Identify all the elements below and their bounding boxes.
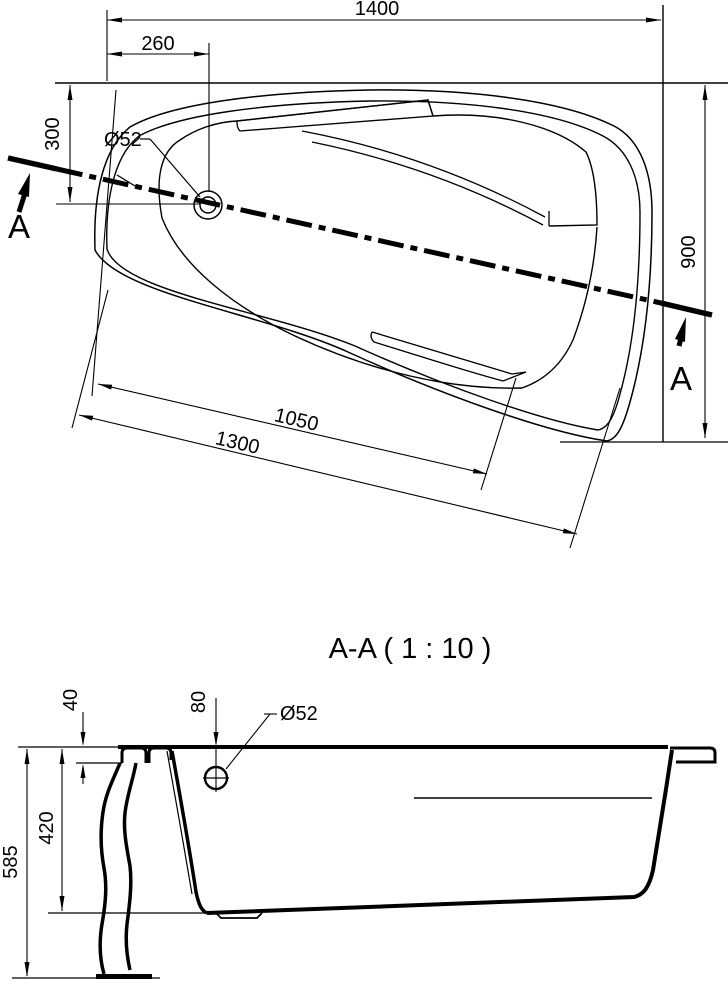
dim-1400-arrow-right bbox=[646, 18, 661, 23]
section-right-wall-and-bottom bbox=[207, 750, 672, 913]
basin-edge-top bbox=[159, 100, 597, 226]
bathtub-drawing-svg: 1400 260 300 900 1050 1300 Ø52 A A bbox=[0, 0, 728, 984]
dim-40-arrow-up bbox=[81, 764, 86, 778]
ext-1050-right bbox=[481, 378, 516, 490]
dim-1050-arrow-right bbox=[473, 468, 487, 474]
section-view bbox=[12, 698, 715, 979]
dim-1400-arrow-left bbox=[107, 18, 122, 23]
section-leg-outer bbox=[100, 763, 120, 974]
section-title: A-A ( 1 : 10 ) bbox=[329, 633, 492, 665]
section-marker-label-end: A bbox=[670, 360, 692, 397]
dim-1300-line bbox=[79, 415, 577, 534]
dim-40-arrow-down bbox=[81, 732, 86, 746]
dim-1300-label: 1300 bbox=[213, 427, 261, 459]
section-leg-inner bbox=[124, 763, 136, 970]
tub-inner-rim bbox=[107, 101, 640, 430]
section-left-wall-outer bbox=[172, 751, 207, 913]
seat-left-cap bbox=[371, 332, 374, 342]
dim-40-label: 40 bbox=[60, 689, 82, 711]
drain-leader-line bbox=[150, 139, 200, 197]
dim-300-label: 300 bbox=[42, 117, 64, 150]
section-line-end-left bbox=[8, 158, 57, 169]
plan-view bbox=[8, 5, 728, 548]
dim-585-arrow-bottom bbox=[25, 962, 30, 977]
dim-900-arrow-top bbox=[703, 85, 708, 100]
dim-1050-label: 1050 bbox=[272, 404, 320, 436]
dim-420-label: 420 bbox=[36, 811, 58, 844]
section-left-wall-inner bbox=[167, 751, 192, 894]
backrest-slope-line-1 bbox=[302, 131, 545, 217]
drain-diameter-label-section: Ø52 bbox=[280, 703, 318, 725]
ext-1300-left bbox=[72, 290, 108, 428]
basin-edge-right-lower bbox=[522, 227, 597, 388]
dim-1050-arrow-left bbox=[98, 384, 112, 390]
section-marker-label-start: A bbox=[8, 208, 30, 245]
dim-420-arrow-top bbox=[60, 749, 65, 764]
section-arrow-left-head bbox=[18, 173, 30, 197]
dim-1400-label: 1400 bbox=[355, 0, 400, 20]
dim-1300-arrow-left bbox=[79, 415, 93, 421]
section-line-dashes bbox=[57, 169, 661, 303]
section-line-end-right bbox=[661, 303, 712, 315]
section-flange-right bbox=[670, 748, 715, 762]
dim-300-arrow-bottom bbox=[68, 187, 73, 202]
backrest-slope-line-2 bbox=[312, 142, 543, 225]
ext-1300-right bbox=[570, 388, 620, 548]
dim-260-arrow-right bbox=[194, 52, 209, 57]
section-arrow-right-head bbox=[675, 317, 686, 342]
dim-585-label: 585 bbox=[0, 845, 22, 878]
basin-edge-bottom bbox=[162, 218, 522, 388]
seat-edge-lower bbox=[374, 342, 503, 381]
headrest-ledge bbox=[237, 100, 433, 131]
seat-point-chevron bbox=[503, 372, 526, 381]
tub-outer-rim bbox=[95, 90, 652, 441]
dim-80-arrow bbox=[214, 732, 219, 746]
section-rim-tab-1 bbox=[122, 748, 146, 763]
dim-900-arrow-bottom bbox=[703, 423, 708, 438]
dim-420-arrow-bottom bbox=[60, 896, 65, 911]
dim-900-label: 900 bbox=[678, 235, 700, 268]
dim-585-arrow-top bbox=[25, 749, 30, 764]
dim-260-label: 260 bbox=[141, 33, 174, 55]
dim-80-label: 80 bbox=[188, 691, 210, 713]
dim-260-arrow-left bbox=[107, 52, 122, 57]
dim-300-arrow-top bbox=[68, 85, 73, 100]
technical-drawing-page: 1400 260 300 900 1050 1300 Ø52 A A bbox=[0, 0, 728, 984]
section-drain-leader bbox=[226, 714, 270, 769]
seat-edge-upper bbox=[372, 332, 512, 374]
drain-diameter-label-plan: Ø52 bbox=[104, 129, 142, 151]
